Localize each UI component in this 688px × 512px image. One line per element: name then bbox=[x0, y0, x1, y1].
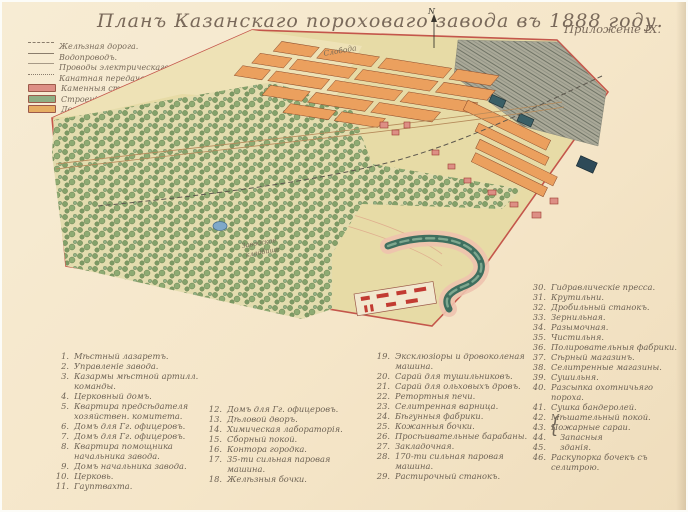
index-item-number: 31. bbox=[529, 292, 551, 302]
index-item-label: Закладочная. bbox=[395, 441, 530, 451]
index-item-number: 43. bbox=[529, 422, 551, 432]
index-item-number: 34. bbox=[529, 322, 551, 332]
index-item-label: 170-ти сильная паровая машина. bbox=[395, 451, 530, 471]
index-item-number: 20. bbox=[373, 371, 395, 381]
index-item-label: Сушильня. bbox=[551, 372, 687, 382]
index-item-number: 1. bbox=[52, 351, 74, 361]
index-item: 21. Сарай для ольховыхъ дровъ. bbox=[373, 381, 530, 391]
index-item-label: Селитренные магазины. bbox=[551, 362, 687, 372]
index-item-number: 37. bbox=[529, 352, 551, 362]
index-item: 18. Желѣзныя бочки. bbox=[205, 474, 357, 484]
index-item: 12. Домъ для Гг. офицеровъ. bbox=[205, 404, 357, 414]
index-item: 38. Селитренные магазины. bbox=[529, 362, 687, 372]
index-item-label: Домъ для Гг. офицеровъ. bbox=[227, 404, 357, 414]
index-item-label: Запасныя bbox=[551, 432, 687, 442]
index-item: 33. Зернильная. bbox=[529, 312, 687, 322]
index-item-label: зданія. bbox=[551, 442, 687, 452]
index-item-number: 26. bbox=[373, 431, 395, 441]
index-item-label: Дробильный станокъ. bbox=[551, 302, 687, 312]
index-item: 15. Сборный покой. bbox=[205, 434, 357, 444]
index-item-number: 12. bbox=[205, 404, 227, 414]
index-item-number: 13. bbox=[205, 414, 227, 424]
index-item: 3. Казармы мѣстной артилл. команды. bbox=[52, 371, 208, 391]
index-item-number: 17. bbox=[205, 454, 227, 464]
index-item-label: Чистильня. bbox=[551, 332, 687, 342]
index-item: 17. 35-ти сильная паровая машина. bbox=[205, 454, 357, 474]
index-item-label: Селитренная варница. bbox=[395, 401, 530, 411]
index-item-number: 46. bbox=[529, 452, 551, 462]
index-item-number: 25. bbox=[373, 421, 395, 431]
index-item-label: Эксклюзіоры и дровоколеная машина. bbox=[395, 351, 530, 371]
index-item-number: 14. bbox=[205, 424, 227, 434]
index-column-3: 19. Эксклюзіоры и дровоколеная машина. 2… bbox=[373, 351, 530, 481]
index-column-1: 1. Мѣстный лазаретъ. 2. Управленіе завод… bbox=[52, 351, 208, 491]
index-item: 8. Квартира помощника начальника завода. bbox=[52, 441, 208, 461]
index-item-number: 5. bbox=[52, 401, 74, 411]
index-item-label: Химическая лабораторія. bbox=[227, 424, 357, 434]
index-item: 27. Закладочная. bbox=[373, 441, 530, 451]
index-item: 2. Управленіе завода. bbox=[52, 361, 208, 371]
index-item: 36. Полировательныя фабрики. bbox=[529, 342, 687, 352]
index-item-number: 32. bbox=[529, 302, 551, 312]
index-item-number: 21. bbox=[373, 381, 395, 391]
index-item: 40. Разсыпка охотничьяго пороха. bbox=[529, 382, 687, 402]
index-item-number: 10. bbox=[52, 471, 74, 481]
index-item-number: 28. bbox=[373, 451, 395, 461]
index-item: 20. Сарай для тушильниковъ. bbox=[373, 371, 530, 381]
index-item-number: 41. bbox=[529, 402, 551, 412]
index-item-label: Церковный домъ. bbox=[74, 391, 208, 401]
scanned-map-page: Планъ Казанскаго пороховаго завода въ 18… bbox=[0, 0, 688, 512]
index-item-label: Растирочный станокъ. bbox=[395, 471, 530, 481]
index-item-label: Квартира предсѣдателя хозяйствен. комите… bbox=[74, 401, 208, 421]
index-item-number: 9. bbox=[52, 461, 74, 471]
index-column-2: 12. Домъ для Гг. офицеровъ. 13. Дѣловой … bbox=[205, 404, 357, 484]
index-item: 11. Гауптвахта. bbox=[52, 481, 208, 491]
index-item-label: Полировательныя фабрики. bbox=[551, 342, 687, 352]
index-item: 31. Крутильни. bbox=[529, 292, 687, 302]
index-item: 23. Селитренная варница. bbox=[373, 401, 530, 411]
index-item: 32. Дробильный станокъ. bbox=[529, 302, 687, 312]
index-item: 22. Ретортныя печи. bbox=[373, 391, 530, 401]
index-item-label: Домъ начальника завода. bbox=[74, 461, 208, 471]
index-item-number: 29. bbox=[373, 471, 395, 481]
index-item: 30. Гидравлическіе пресса. bbox=[529, 282, 687, 292]
index-item: 4. Церковный домъ. bbox=[52, 391, 208, 401]
index-item: 7. Домъ для Гг. офицеровъ. bbox=[52, 431, 208, 441]
index-item-number: 30. bbox=[529, 282, 551, 292]
index-item-label: Сѣрный магазинъ. bbox=[551, 352, 687, 362]
index-item-label: Ретортныя печи. bbox=[395, 391, 530, 401]
index-item-number: 23. bbox=[373, 401, 395, 411]
index-item-number: 35. bbox=[529, 332, 551, 342]
index-item: 19. Эксклюзіоры и дровоколеная машина. bbox=[373, 351, 530, 371]
index-item-number: 6. bbox=[52, 421, 74, 431]
index-item: 9. Домъ начальника завода. bbox=[52, 461, 208, 471]
index-item-number: 27. bbox=[373, 441, 395, 451]
svg-text:N: N bbox=[427, 7, 436, 16]
index-item: 13. Дѣловой дворъ. bbox=[205, 414, 357, 424]
index-item-label: Пожарные сараи. bbox=[551, 422, 687, 432]
index-item-number: 3. bbox=[52, 371, 74, 381]
index-item-label: Гидравлическіе пресса. bbox=[551, 282, 687, 292]
index-item-label: Дѣловой дворъ. bbox=[227, 414, 357, 424]
index-item-number: 2. bbox=[52, 361, 74, 371]
index-item: 46. Раскупорка бочекъ съ селитрою. bbox=[529, 452, 687, 472]
brace-glyph: { bbox=[549, 420, 560, 433]
index-item-number: 40. bbox=[529, 382, 551, 392]
index-item-number: 22. bbox=[373, 391, 395, 401]
index-item-number: 4. bbox=[52, 391, 74, 401]
index-item-label: Разсыпка охотничьяго пороха. bbox=[551, 382, 687, 402]
index-item-label: Зернильная. bbox=[551, 312, 687, 322]
index-item-label: Сушка бандеролей. bbox=[551, 402, 687, 412]
index-item-label: Сарай для тушильниковъ. bbox=[395, 371, 530, 381]
index-item-label: Бѣгунныя фабрики. bbox=[395, 411, 530, 421]
index-item-label: Крутильни. bbox=[551, 292, 687, 302]
index-item-label: Просѣивательные барабаны. bbox=[395, 431, 530, 441]
index-item: 14. Химическая лабораторія. bbox=[205, 424, 357, 434]
index-item: 10. Церковь. bbox=[52, 471, 208, 481]
index-item-label: 35-ти сильная паровая машина. bbox=[227, 454, 357, 474]
index-item: 34. Разымочная. bbox=[529, 322, 687, 332]
index-item-label: Разымочная. bbox=[551, 322, 687, 332]
index-item: 1. Мѣстный лазаретъ. bbox=[52, 351, 208, 361]
index-item-number: 36. bbox=[529, 342, 551, 352]
index-item-number: 39. bbox=[529, 372, 551, 382]
index-item: 29. Растирочный станокъ. bbox=[373, 471, 530, 481]
index-item-label: Казармы мѣстной артилл. команды. bbox=[74, 371, 208, 391]
index-column-4: { 30. Гидравлическіе пресса. 31. Крутиль… bbox=[529, 282, 687, 472]
index-item-number: 16. bbox=[205, 444, 227, 454]
index-item-label: Квартира помощника начальника завода. bbox=[74, 441, 208, 461]
index-item: 35. Чистильня. bbox=[529, 332, 687, 342]
index-item-label: Гауптвахта. bbox=[74, 481, 208, 491]
index-item-label: Церковь. bbox=[74, 471, 208, 481]
index-item: 16. Контора городка. bbox=[205, 444, 357, 454]
index-item-number: 18. bbox=[205, 474, 227, 484]
index-item: 37. Сѣрный магазинъ. bbox=[529, 352, 687, 362]
index-item: 6. Домъ для Гг. офицеровъ. bbox=[52, 421, 208, 431]
index-item: 45. зданія. bbox=[529, 442, 687, 452]
index-item-number: 15. bbox=[205, 434, 227, 444]
index-item: 39. Сушильня. bbox=[529, 372, 687, 382]
index-item-label: Сарай для ольховыхъ дровъ. bbox=[395, 381, 530, 391]
index-item-number: 38. bbox=[529, 362, 551, 372]
index-item-number: 45. bbox=[529, 442, 551, 452]
index-item-number: 33. bbox=[529, 312, 551, 322]
index-item-number: 7. bbox=[52, 431, 74, 441]
index-item-number: 24. bbox=[373, 411, 395, 421]
index-item-label: Мѣстный лазаретъ. bbox=[74, 351, 208, 361]
index-item-label: Мѣшательный покой. bbox=[551, 412, 687, 422]
index-item-label: Домъ для Гг. офицеровъ. bbox=[74, 421, 208, 431]
index-item: 28. 170-ти сильная паровая машина. bbox=[373, 451, 530, 471]
index-item: 25. Кожанныя бочки. bbox=[373, 421, 530, 431]
index-item: 5. Квартира предсѣдателя хозяйствен. ком… bbox=[52, 401, 208, 421]
index-item-label: Кожанныя бочки. bbox=[395, 421, 530, 431]
index-item-number: 42. bbox=[529, 412, 551, 422]
index-item-label: Желѣзныя бочки. bbox=[227, 474, 357, 484]
index-item-label: Домъ для Гг. офицеровъ. bbox=[74, 431, 208, 441]
index-item: 26. Просѣивательные барабаны. bbox=[373, 431, 530, 441]
index-item-label: Контора городка. bbox=[227, 444, 357, 454]
index-item-label: Раскупорка бочекъ съ селитрою. bbox=[551, 452, 687, 472]
index-item-number: 44. bbox=[529, 432, 551, 442]
index-item: 41. Сушка бандеролей. bbox=[529, 402, 687, 412]
index-item-number: 11. bbox=[52, 481, 74, 491]
index-item-number: 19. bbox=[373, 351, 395, 361]
index-item-number: 8. bbox=[52, 441, 74, 451]
index-item-label: Сборный покой. bbox=[227, 434, 357, 444]
index-item-label: Управленіе завода. bbox=[74, 361, 208, 371]
index-item: 24. Бѣгунныя фабрики. bbox=[373, 411, 530, 421]
